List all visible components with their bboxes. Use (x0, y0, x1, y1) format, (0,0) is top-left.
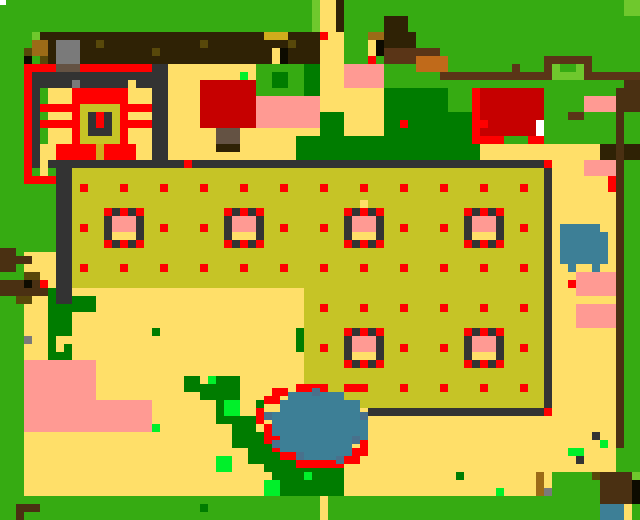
skylight (256, 208, 264, 216)
roof-dot (160, 224, 168, 232)
skylight (464, 208, 472, 216)
skylight (352, 352, 376, 360)
skylight (352, 216, 376, 232)
shrine (40, 160, 48, 176)
roof-dot (80, 264, 88, 272)
terrain (616, 448, 624, 472)
skylight (232, 232, 256, 240)
paths (576, 304, 616, 328)
pond (352, 436, 360, 444)
pond (264, 412, 272, 420)
hedge-fence (200, 40, 208, 48)
hedge-fence (272, 48, 280, 64)
main-building (184, 160, 192, 168)
roof-dot (440, 384, 448, 392)
roof-dot (160, 184, 168, 192)
skylight (472, 216, 496, 232)
skylight (352, 336, 376, 352)
shrine (56, 40, 80, 64)
skylight (344, 208, 352, 216)
roof-dot (480, 264, 488, 272)
roof-dot (360, 304, 368, 312)
skylight (360, 208, 368, 216)
hedge-fence (480, 72, 544, 80)
foliage (208, 376, 216, 384)
debris (40, 280, 48, 288)
roof-dot (200, 184, 208, 192)
skylight (480, 240, 488, 248)
paths (24, 400, 152, 432)
main-building (48, 160, 552, 168)
skylight (224, 208, 232, 216)
terrain (624, 0, 640, 16)
foliage (344, 136, 392, 160)
paths (576, 272, 616, 296)
shrine (24, 176, 56, 184)
shrine (96, 112, 104, 128)
roof-dot (440, 344, 448, 352)
hedge-fence (32, 32, 40, 40)
skylight (344, 360, 352, 368)
hedge-fence (512, 64, 520, 72)
roof-dot (280, 264, 288, 272)
houses (472, 88, 480, 144)
pond (360, 412, 368, 420)
skylight (496, 328, 504, 336)
houses (528, 136, 544, 144)
terrain (344, 88, 384, 136)
roof-dot (520, 224, 528, 232)
skylight (120, 240, 128, 248)
main-building (368, 408, 544, 416)
houses (536, 120, 544, 136)
debris (576, 456, 584, 464)
hedge-fence (16, 504, 40, 512)
houses (216, 144, 240, 152)
pond (280, 452, 296, 460)
skylight (376, 360, 384, 368)
roof-dot (440, 184, 448, 192)
hedge-fence (440, 72, 480, 80)
roof-dot (400, 344, 408, 352)
hedge-fence (16, 256, 32, 264)
foliage (272, 72, 288, 88)
skylight (360, 360, 368, 368)
skylight (240, 208, 248, 216)
roof-dot (120, 264, 128, 272)
skylight (472, 352, 496, 360)
hedge-fence (384, 16, 408, 32)
paths (344, 64, 384, 88)
skylight (376, 208, 384, 216)
roof-dot (240, 184, 248, 192)
foliage (200, 384, 216, 400)
roof-dot (440, 224, 448, 232)
houses (200, 80, 256, 128)
pond (344, 384, 360, 392)
roof-dot (320, 184, 328, 192)
skylight (120, 208, 128, 216)
hedge-fence (544, 64, 552, 80)
skylight (464, 240, 472, 248)
hedge-fence (624, 80, 640, 112)
roof-dot (200, 224, 208, 232)
hedge-fence (32, 40, 48, 56)
foliage (152, 328, 160, 336)
roof-dot (320, 264, 328, 272)
roof-dot (280, 184, 288, 192)
skylight (360, 240, 368, 248)
hedge-fence (584, 64, 592, 80)
hedge-fence (288, 40, 296, 48)
debris (592, 432, 600, 440)
furniture (600, 504, 624, 520)
hedge-fence (368, 32, 384, 40)
shrine (24, 64, 168, 72)
roof-dot (360, 384, 368, 392)
hedge-fence (280, 48, 288, 64)
roof-dot (80, 224, 88, 232)
shrine (40, 144, 56, 160)
pond (296, 452, 304, 460)
houses (504, 136, 528, 144)
foliage (320, 112, 344, 160)
houses (240, 72, 248, 80)
pond (264, 396, 280, 404)
skylight (480, 208, 488, 216)
roof-dot (480, 384, 488, 392)
houses (584, 96, 616, 112)
main-building (544, 160, 552, 168)
hedge-fence (16, 512, 24, 520)
pond (312, 388, 320, 396)
pond (360, 440, 368, 448)
foliage (216, 456, 232, 472)
skylight (240, 240, 248, 248)
foliage (384, 88, 448, 160)
skylight (472, 336, 496, 352)
roof-dot (440, 304, 448, 312)
terrain (312, 0, 320, 32)
roof-dot (360, 184, 368, 192)
foliage (64, 344, 72, 360)
debris (200, 504, 208, 512)
skylight (104, 240, 112, 248)
debris (368, 56, 376, 64)
main-building (360, 200, 368, 208)
foliage (304, 464, 344, 496)
foliage (304, 472, 312, 480)
skylight (136, 208, 144, 216)
roof-dot (320, 304, 328, 312)
paths (152, 424, 160, 432)
hedge-fence (40, 56, 48, 64)
pond (264, 424, 272, 436)
houses (480, 120, 488, 128)
skylight (480, 360, 488, 368)
hedge-fence (616, 88, 624, 448)
roof-dot (80, 184, 88, 192)
hedge-fence (376, 40, 384, 56)
hedge-fence (264, 32, 288, 40)
foliage (264, 480, 280, 496)
debris (24, 336, 32, 344)
paths (608, 176, 616, 192)
skylight (352, 232, 376, 240)
paths (24, 360, 96, 400)
paths (584, 160, 616, 176)
hedge-fence (16, 296, 32, 304)
hedge-fence (560, 64, 576, 72)
debris (0, 0, 6, 5)
debris (568, 448, 584, 456)
debris (592, 472, 600, 480)
roof-dot (520, 304, 528, 312)
skylight (104, 208, 112, 216)
roof-dot (200, 264, 208, 272)
hedge-fence (336, 0, 344, 32)
roof-dot (400, 264, 408, 272)
shrine (32, 88, 40, 160)
hedge-fence (592, 72, 640, 80)
paths (568, 280, 576, 288)
houses (480, 88, 544, 136)
pond (344, 456, 360, 464)
skylight (360, 328, 368, 336)
hedge-fence (384, 32, 416, 48)
main-building (544, 168, 552, 408)
houses (568, 112, 584, 120)
shrine (152, 88, 168, 160)
shrine (136, 144, 152, 160)
skylight (344, 328, 352, 336)
main-building (544, 408, 552, 416)
roof-dot (120, 184, 128, 192)
terrain (320, 496, 328, 520)
houses (480, 136, 504, 144)
skylight (344, 240, 352, 248)
paths (256, 96, 320, 128)
debris (544, 488, 552, 496)
skylight (480, 328, 488, 336)
hedge-fence (544, 56, 592, 64)
pond (272, 388, 288, 396)
shrine (24, 72, 32, 176)
skylight (472, 232, 496, 240)
hedge-fence (152, 48, 160, 56)
pond (280, 400, 360, 412)
hedge-fence (632, 472, 640, 480)
skylight (376, 240, 384, 248)
roof-dot (240, 264, 248, 272)
skylight (496, 240, 504, 248)
skylight (496, 208, 504, 216)
skylight (256, 240, 264, 248)
houses (216, 128, 240, 144)
pond (352, 448, 368, 456)
roof-dot (400, 384, 408, 392)
debris (24, 280, 32, 288)
terrain (624, 504, 632, 520)
furniture (568, 264, 576, 272)
pond (256, 408, 264, 424)
skylight (464, 328, 472, 336)
debris (320, 32, 328, 40)
foliage (72, 296, 96, 312)
hedge-fence (96, 40, 104, 48)
shrine (56, 64, 80, 72)
foliage (296, 136, 320, 160)
roof-dot (520, 344, 528, 352)
skylight (376, 328, 384, 336)
roof-dot (520, 184, 528, 192)
hedge-fence (0, 248, 16, 272)
debris (400, 120, 408, 128)
roof-dot (520, 384, 528, 392)
hedge-fence (24, 56, 32, 64)
roof-dot (400, 304, 408, 312)
pond (336, 456, 344, 464)
skylight (136, 240, 144, 248)
shrine (32, 72, 168, 88)
skylight (232, 216, 256, 232)
roof-dot (280, 224, 288, 232)
skylight (496, 360, 504, 368)
debris (600, 440, 608, 448)
furniture (592, 264, 600, 272)
furniture (560, 224, 600, 232)
hedge-fence (632, 480, 640, 504)
game-map[interactable] (0, 0, 640, 520)
roof-dot (320, 384, 328, 392)
skylight (112, 216, 136, 232)
roof-dot (160, 264, 168, 272)
roof-dot (480, 184, 488, 192)
main-building (304, 288, 544, 408)
skylight (112, 232, 136, 240)
foliage (224, 400, 240, 416)
roof-dot (320, 344, 328, 352)
shrine (152, 64, 168, 88)
hedge-fence (368, 40, 376, 56)
foliage (184, 376, 200, 392)
pond (272, 440, 280, 448)
debris (496, 488, 504, 496)
debris (456, 472, 464, 480)
hedge-fence (24, 272, 40, 280)
foliage (304, 64, 320, 96)
foliage (296, 328, 304, 352)
roof-dot (400, 224, 408, 232)
roof-dot (520, 264, 528, 272)
debris (536, 472, 544, 496)
furniture (560, 232, 608, 264)
shrine (96, 144, 104, 160)
roof-dot (480, 304, 488, 312)
hedge-fence (416, 56, 448, 72)
main-building (56, 168, 72, 304)
roof-dot (360, 264, 368, 272)
roof-dot (400, 184, 408, 192)
roof-dot (320, 224, 328, 232)
skylight (224, 240, 232, 248)
skylight (464, 360, 472, 368)
shrine (128, 80, 136, 88)
hedge-fence (600, 472, 632, 504)
roof-dot (440, 264, 448, 272)
